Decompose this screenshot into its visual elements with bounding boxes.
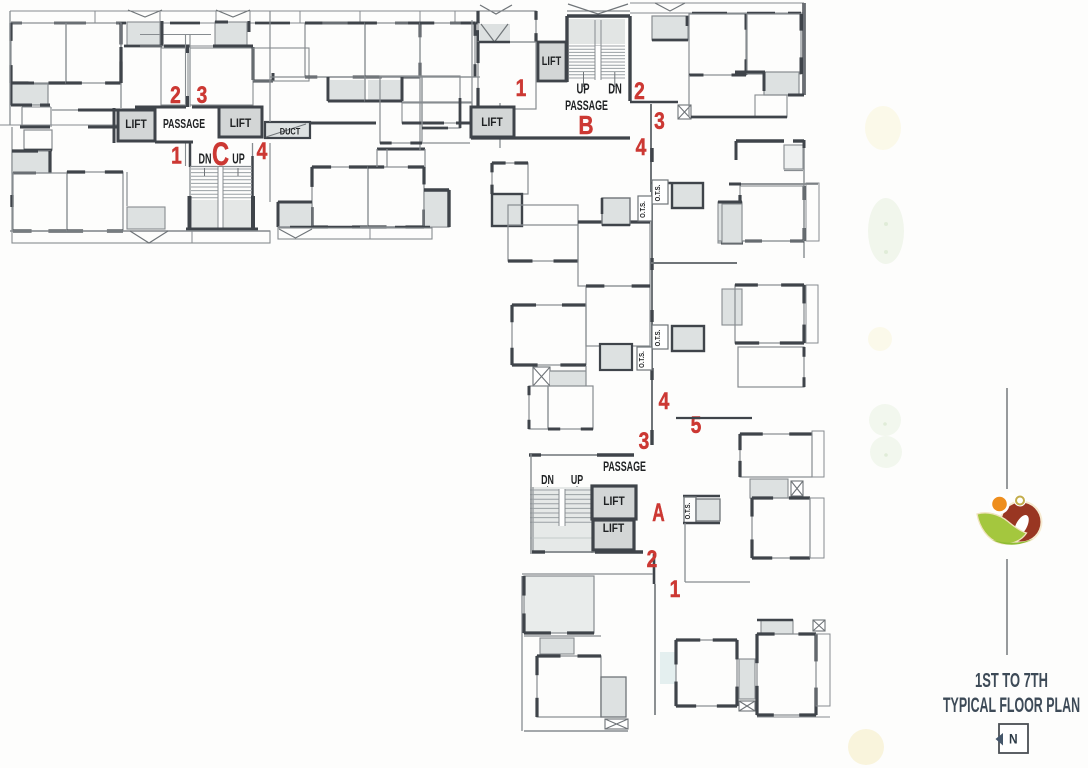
svg-text:2: 2	[170, 81, 181, 109]
svg-text:N: N	[1009, 731, 1018, 747]
svg-text:1: 1	[670, 575, 681, 603]
svg-text:2: 2	[634, 77, 645, 105]
svg-text:LIFT: LIFT	[481, 116, 503, 129]
svg-text:1ST TO 7TH: 1ST TO 7TH	[975, 668, 1048, 692]
svg-text:LIFT: LIFT	[125, 118, 147, 131]
svg-text:LIFT: LIFT	[542, 56, 562, 68]
svg-text:TYPICAL FLOOR PLAN: TYPICAL FLOOR PLAN	[943, 692, 1080, 716]
svg-text:5: 5	[691, 411, 702, 439]
svg-text:O.T.S.: O.T.S.	[638, 351, 646, 368]
svg-text:1: 1	[516, 74, 527, 102]
svg-text:PASSAGE: PASSAGE	[163, 118, 205, 132]
svg-text:O.T.S.: O.T.S.	[654, 185, 662, 202]
svg-text:PASSAGE: PASSAGE	[603, 460, 646, 474]
svg-text:A: A	[652, 499, 664, 527]
svg-text:UP: UP	[571, 473, 584, 487]
svg-text:2: 2	[647, 545, 658, 573]
svg-text:LIFT: LIFT	[603, 495, 625, 508]
svg-text:O.T.S.: O.T.S.	[684, 503, 692, 520]
svg-text:O.T.S.: O.T.S.	[639, 201, 647, 218]
svg-text:DN: DN	[541, 473, 554, 487]
svg-text:4: 4	[636, 133, 647, 161]
svg-text:DN: DN	[199, 150, 212, 167]
svg-text:3: 3	[639, 427, 650, 455]
svg-text:1: 1	[171, 141, 182, 169]
svg-text:LIFT: LIFT	[230, 117, 252, 130]
svg-text:DUCT: DUCT	[280, 126, 301, 137]
svg-text:3: 3	[654, 107, 665, 135]
svg-text:DN: DN	[608, 80, 622, 97]
svg-text:LIFT: LIFT	[603, 522, 625, 535]
svg-text:O.T.S.: O.T.S.	[654, 330, 662, 347]
svg-text:UP: UP	[576, 80, 589, 97]
svg-text:4: 4	[257, 137, 268, 165]
svg-text:4: 4	[659, 387, 670, 415]
svg-text:3: 3	[197, 81, 208, 109]
svg-text:UP: UP	[232, 150, 244, 167]
svg-text:B: B	[578, 111, 593, 140]
